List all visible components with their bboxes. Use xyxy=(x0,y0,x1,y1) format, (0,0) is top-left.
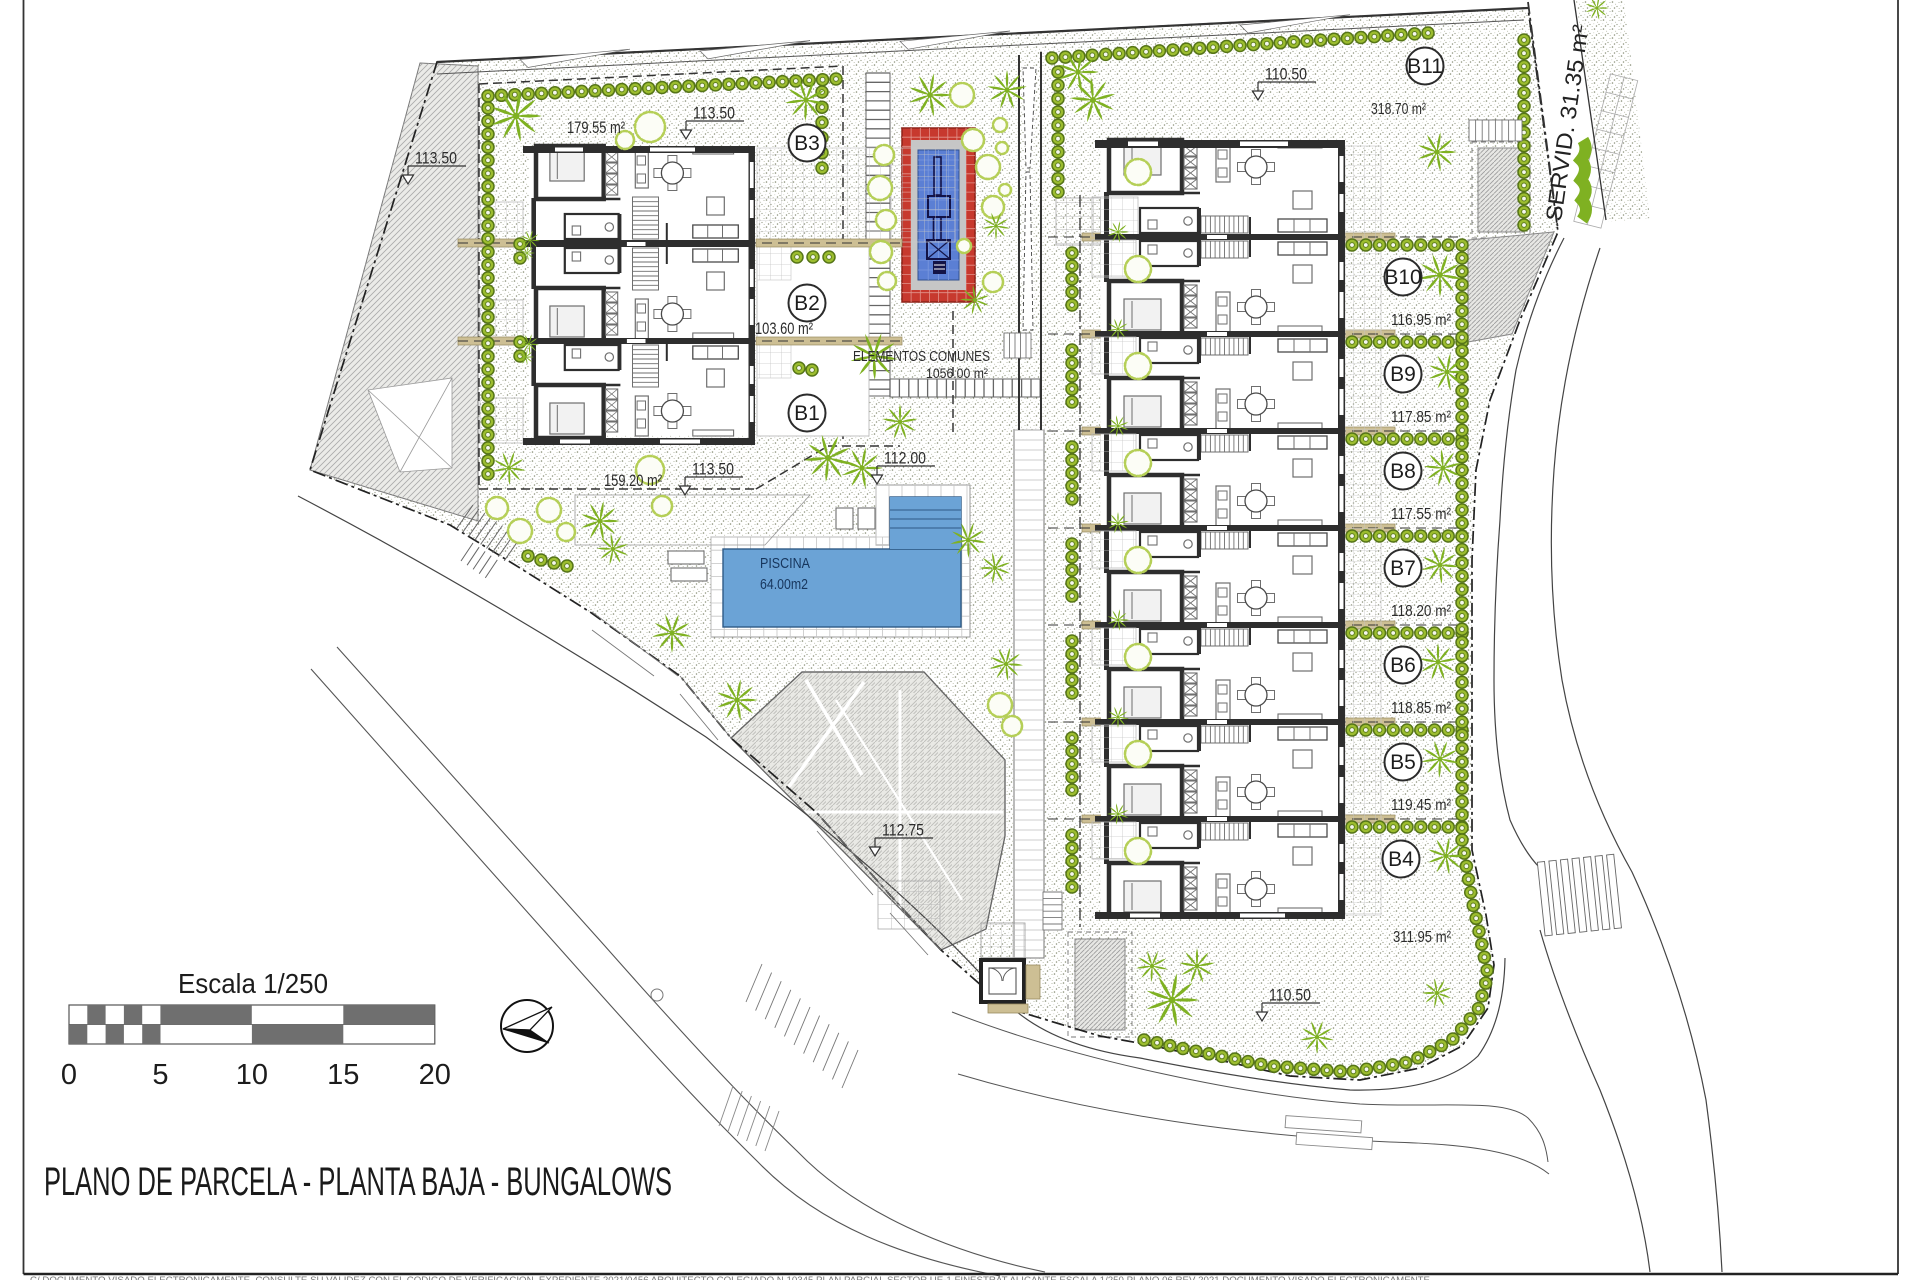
svg-text:PLANO DE PARCELA - PLANTA BAJA: PLANO DE PARCELA - PLANTA BAJA - BUNGALO… xyxy=(44,1160,672,1204)
svg-text:103.60 m²: 103.60 m² xyxy=(755,319,813,338)
svg-text:159.20 m²: 159.20 m² xyxy=(604,471,662,490)
svg-text:10: 10 xyxy=(236,1059,268,1091)
svg-text:0: 0 xyxy=(61,1059,77,1091)
svg-text:318.70 m²: 318.70 m² xyxy=(1371,101,1427,118)
svg-text:B6: B6 xyxy=(1390,654,1416,677)
svg-text:112.00: 112.00 xyxy=(884,449,926,468)
svg-text:B10: B10 xyxy=(1384,266,1421,289)
svg-text:B9: B9 xyxy=(1390,363,1416,386)
svg-text:117.55 m²: 117.55 m² xyxy=(1391,506,1452,523)
svg-text:B5: B5 xyxy=(1390,751,1416,774)
svg-text:15: 15 xyxy=(327,1059,359,1091)
svg-text:118.20 m²: 118.20 m² xyxy=(1391,603,1452,620)
svg-text:113.50: 113.50 xyxy=(692,460,734,479)
svg-text:118.85 m²: 118.85 m² xyxy=(1391,700,1452,717)
svg-text:64.00m2: 64.00m2 xyxy=(760,577,808,593)
svg-text:311.95 m²: 311.95 m² xyxy=(1393,929,1452,946)
svg-text:C/ DOCUMENTO VISADO ELECTRONIC: C/ DOCUMENTO VISADO ELECTRONICAMENTE. CO… xyxy=(30,1275,1430,1280)
svg-text:B7: B7 xyxy=(1390,557,1416,580)
svg-text:B4: B4 xyxy=(1388,848,1414,871)
svg-text:B2: B2 xyxy=(794,292,820,315)
svg-text:113.50: 113.50 xyxy=(693,104,735,123)
svg-text:B3: B3 xyxy=(794,132,820,155)
svg-text:116.95 m²: 116.95 m² xyxy=(1391,312,1452,329)
svg-text:PISCINA: PISCINA xyxy=(760,556,810,572)
svg-text:B11: B11 xyxy=(1407,55,1443,78)
svg-text:112.75: 112.75 xyxy=(882,821,924,840)
svg-text:179.55 m²: 179.55 m² xyxy=(567,118,625,137)
svg-text:Escala 1/250: Escala 1/250 xyxy=(178,968,328,999)
svg-text:5: 5 xyxy=(152,1059,168,1091)
svg-text:110.50: 110.50 xyxy=(1269,986,1311,1005)
svg-text:110.50: 110.50 xyxy=(1265,65,1307,84)
svg-text:1056.00 m²: 1056.00 m² xyxy=(926,365,988,381)
svg-text:113.50: 113.50 xyxy=(415,149,457,168)
svg-text:119.45 m²: 119.45 m² xyxy=(1391,797,1452,814)
svg-text:ELEMENTOS COMUNES: ELEMENTOS COMUNES xyxy=(853,348,990,365)
svg-text:B1: B1 xyxy=(794,402,820,425)
svg-text:20: 20 xyxy=(419,1059,451,1091)
svg-text:117.85 m²: 117.85 m² xyxy=(1391,409,1452,426)
svg-text:B8: B8 xyxy=(1390,460,1416,483)
